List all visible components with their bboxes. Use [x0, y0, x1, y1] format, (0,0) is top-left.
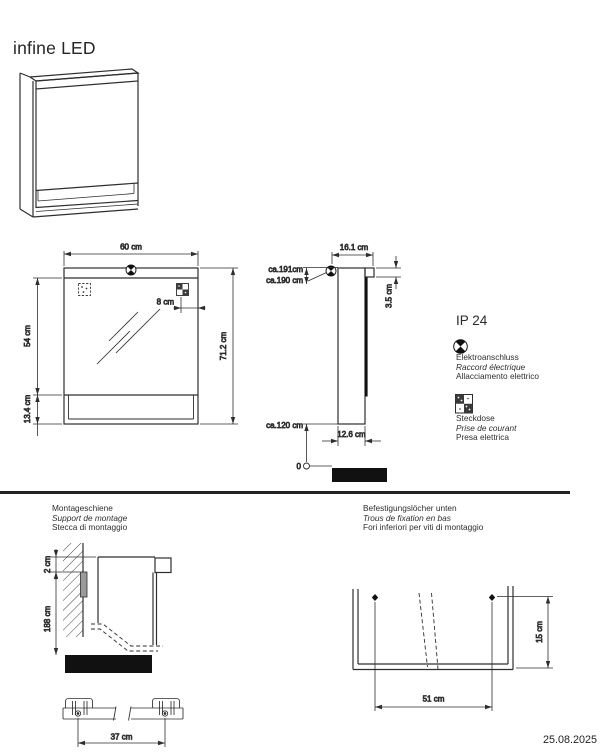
- page-title: infine LED: [13, 38, 96, 59]
- dim-total-height-label: 71.2 cm: [219, 331, 228, 360]
- document-date: 25.08.2025: [543, 734, 597, 746]
- dim-height-connection-label: ca.190 cm: [266, 276, 303, 285]
- dim-top-offset-label: 2 cm: [43, 556, 52, 574]
- dim-height-top-label: ca.191cm: [268, 265, 303, 274]
- spec-sheet: 60 cm 54 cm 13.4 cm 71.2 cm 8 cm 16.1 cm: [0, 0, 600, 752]
- dim-height-bottom-label: ca.120 cm: [266, 421, 303, 430]
- side-view-drawing: [338, 268, 374, 424]
- socket-legend-icon: [456, 395, 473, 414]
- socket-label: Steckdose Prise de courant Presa elettri…: [456, 414, 516, 443]
- zero-level-marker: [304, 463, 310, 469]
- electro-connection-label: Elektroanschluss Raccord électrique Alla…: [456, 353, 539, 382]
- mounting-rail-drawing: [63, 543, 171, 673]
- dim-shelf-height-label: 13.4 cm: [23, 394, 32, 423]
- washbasin-block: [332, 468, 387, 482]
- side-view-dimensions: 16.1 cm 3.5 cm ca.191cm ca.190 cm ca.120…: [266, 243, 401, 482]
- dim-rail-height-label: 188 cm: [43, 606, 52, 633]
- electro-connection-icon-front: [126, 265, 136, 275]
- product-illustration: [20, 69, 138, 217]
- zero-level-label: 0: [297, 462, 302, 471]
- holes-title-it: Fori inferiori per viti di montaggio: [363, 523, 483, 533]
- socket-label-it: Presa elettrica: [456, 433, 516, 443]
- mounting-rail-title: Montageschiene Support de montage Stecca…: [52, 504, 127, 533]
- socket-hidden-icon: [79, 284, 91, 296]
- socket-icon-front: [177, 284, 189, 296]
- dim-body-depth-label: 12.6 cm: [337, 430, 366, 439]
- rail-profile: [81, 572, 88, 597]
- fixation-holes-drawing: [353, 586, 513, 670]
- dim-width-label: 60 cm: [120, 243, 142, 252]
- dim-hole-height-label: 15 cm: [535, 621, 544, 643]
- section-divider: [0, 491, 570, 494]
- electro-label-it: Allacciamento elettrico: [456, 372, 539, 382]
- washbasin-block-side: [65, 655, 152, 673]
- dim-depth-label: 16.1 cm: [340, 243, 369, 252]
- fixation-hole-right: [489, 594, 495, 601]
- fixation-holes-dimensions: 51 cm 15 cm: [375, 597, 553, 712]
- fixation-holes-title: Befestigungslöcher unten Trous de fixati…: [363, 504, 483, 533]
- dim-mirror-height-label: 54 cm: [23, 325, 32, 347]
- dim-socket-offset-label: 8 cm: [157, 298, 175, 307]
- dim-bracket-spacing-label: 37 cm: [111, 733, 133, 742]
- rail-spacing-dimension: 37 cm: [78, 718, 165, 747]
- rail-title-it: Stecca di montaggio: [52, 523, 127, 533]
- ip-rating: IP 24: [456, 313, 487, 328]
- rail-front-view: [63, 699, 183, 721]
- mirror-glass-hatch: [97, 309, 160, 364]
- dim-hole-spacing-label: 51 cm: [423, 695, 445, 704]
- fixation-hole-left: [372, 594, 378, 601]
- dim-light-height-label: 3.5 cm: [385, 284, 394, 308]
